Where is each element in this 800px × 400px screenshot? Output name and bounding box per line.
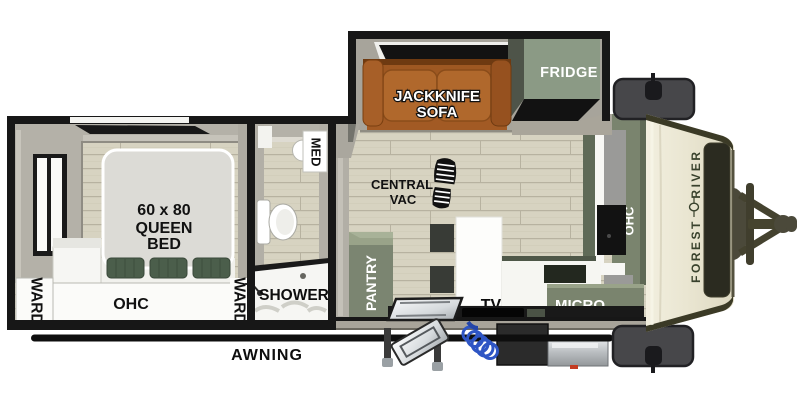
svg-text:QUEEN: QUEEN [136, 220, 193, 237]
svg-text:VAC: VAC [390, 192, 417, 207]
svg-text:RIVER: RIVER [689, 149, 703, 198]
svg-text:SOFA: SOFA [417, 104, 458, 121]
svg-text:OHC: OHC [113, 296, 149, 313]
svg-text:WARD: WARD [231, 277, 248, 324]
svg-text:CENTRAL: CENTRAL [371, 177, 433, 192]
svg-text:PANTRY: PANTRY [363, 254, 379, 311]
svg-text:60 x 80: 60 x 80 [137, 202, 190, 219]
svg-text:BED: BED [147, 236, 181, 253]
svg-text:AWNING: AWNING [231, 347, 303, 364]
svg-text:FRIDGE: FRIDGE [540, 65, 598, 81]
svg-text:FOREST: FOREST [689, 219, 703, 283]
svg-text:MED: MED [309, 138, 324, 167]
svg-text:SHOWER: SHOWER [259, 287, 329, 304]
svg-text:JACKKNIFE: JACKKNIFE [394, 88, 480, 105]
svg-text:WARD: WARD [28, 277, 45, 324]
